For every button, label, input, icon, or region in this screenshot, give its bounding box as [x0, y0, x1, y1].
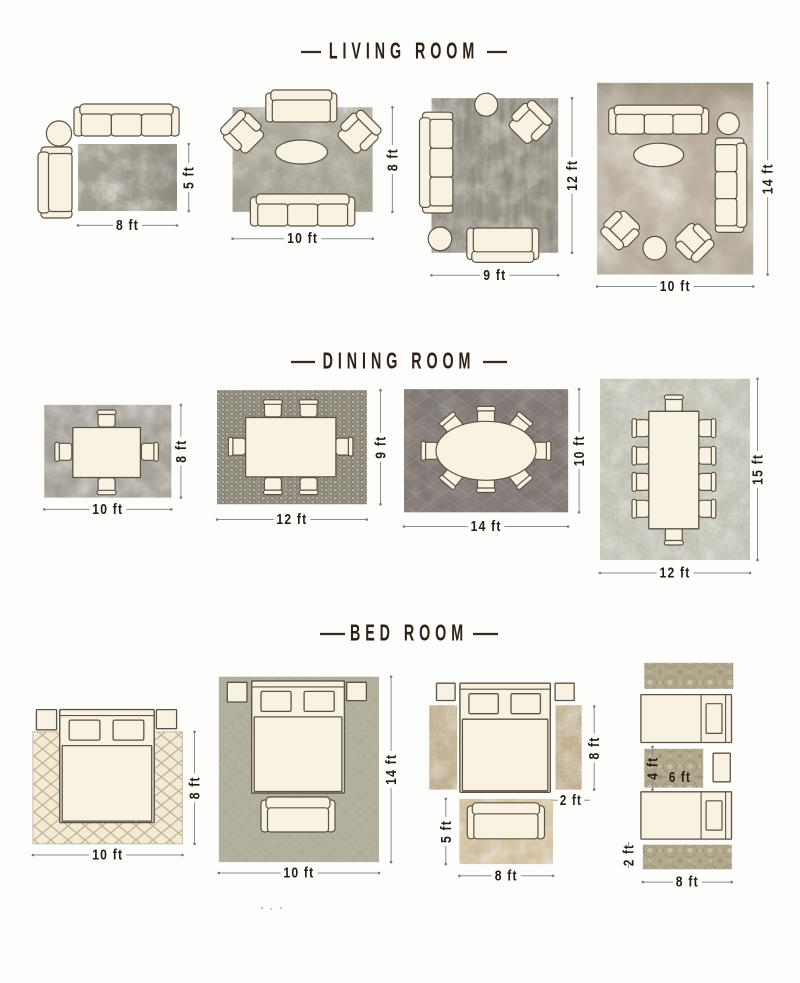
svg-text:9 ft: 9 ft [372, 436, 389, 459]
svg-text:14 ft: 14 ft [759, 163, 776, 194]
svg-text:2 ft: 2 ft [560, 792, 582, 809]
svg-text:5 ft: 5 ft [438, 820, 455, 843]
svg-text:8 ft: 8 ft [186, 776, 203, 799]
svg-text:10 ft: 10 ft [283, 864, 314, 881]
svg-text:DINING ROOM: DINING ROOM [323, 349, 476, 374]
svg-text:8 ft: 8 ft [173, 440, 190, 463]
svg-text:8 ft: 8 ft [495, 867, 518, 884]
svg-text:8 ft: 8 ft [384, 148, 401, 171]
svg-text:12 ft: 12 ft [276, 511, 307, 528]
svg-text:15 ft: 15 ft [749, 454, 766, 485]
svg-text:6 ft: 6 ft [669, 769, 691, 786]
svg-text:10 ft: 10 ft [660, 278, 691, 295]
svg-text:2 ft: 2 ft [620, 844, 637, 866]
svg-text:12 ft: 12 ft [564, 160, 581, 191]
svg-text:10 ft: 10 ft [287, 230, 318, 247]
svg-text:10 ft: 10 ft [92, 846, 123, 863]
svg-text:10 ft: 10 ft [571, 435, 588, 466]
svg-text:14 ft: 14 ft [471, 518, 502, 535]
svg-text:10 ft: 10 ft [92, 501, 123, 518]
svg-text:BED ROOM: BED ROOM [350, 621, 468, 646]
svg-text:8 ft: 8 ft [676, 873, 699, 890]
svg-text:4 ft: 4 ft [644, 757, 661, 780]
svg-text:5 ft: 5 ft [180, 166, 197, 189]
svg-text:12 ft: 12 ft [660, 564, 691, 581]
svg-text:LIVING ROOM: LIVING ROOM [329, 39, 479, 64]
svg-text:14 ft: 14 ft [383, 754, 400, 785]
svg-text:8 ft: 8 ft [116, 217, 139, 234]
svg-text:8 ft: 8 ft [586, 736, 603, 759]
svg-text:9 ft: 9 ft [483, 267, 506, 284]
